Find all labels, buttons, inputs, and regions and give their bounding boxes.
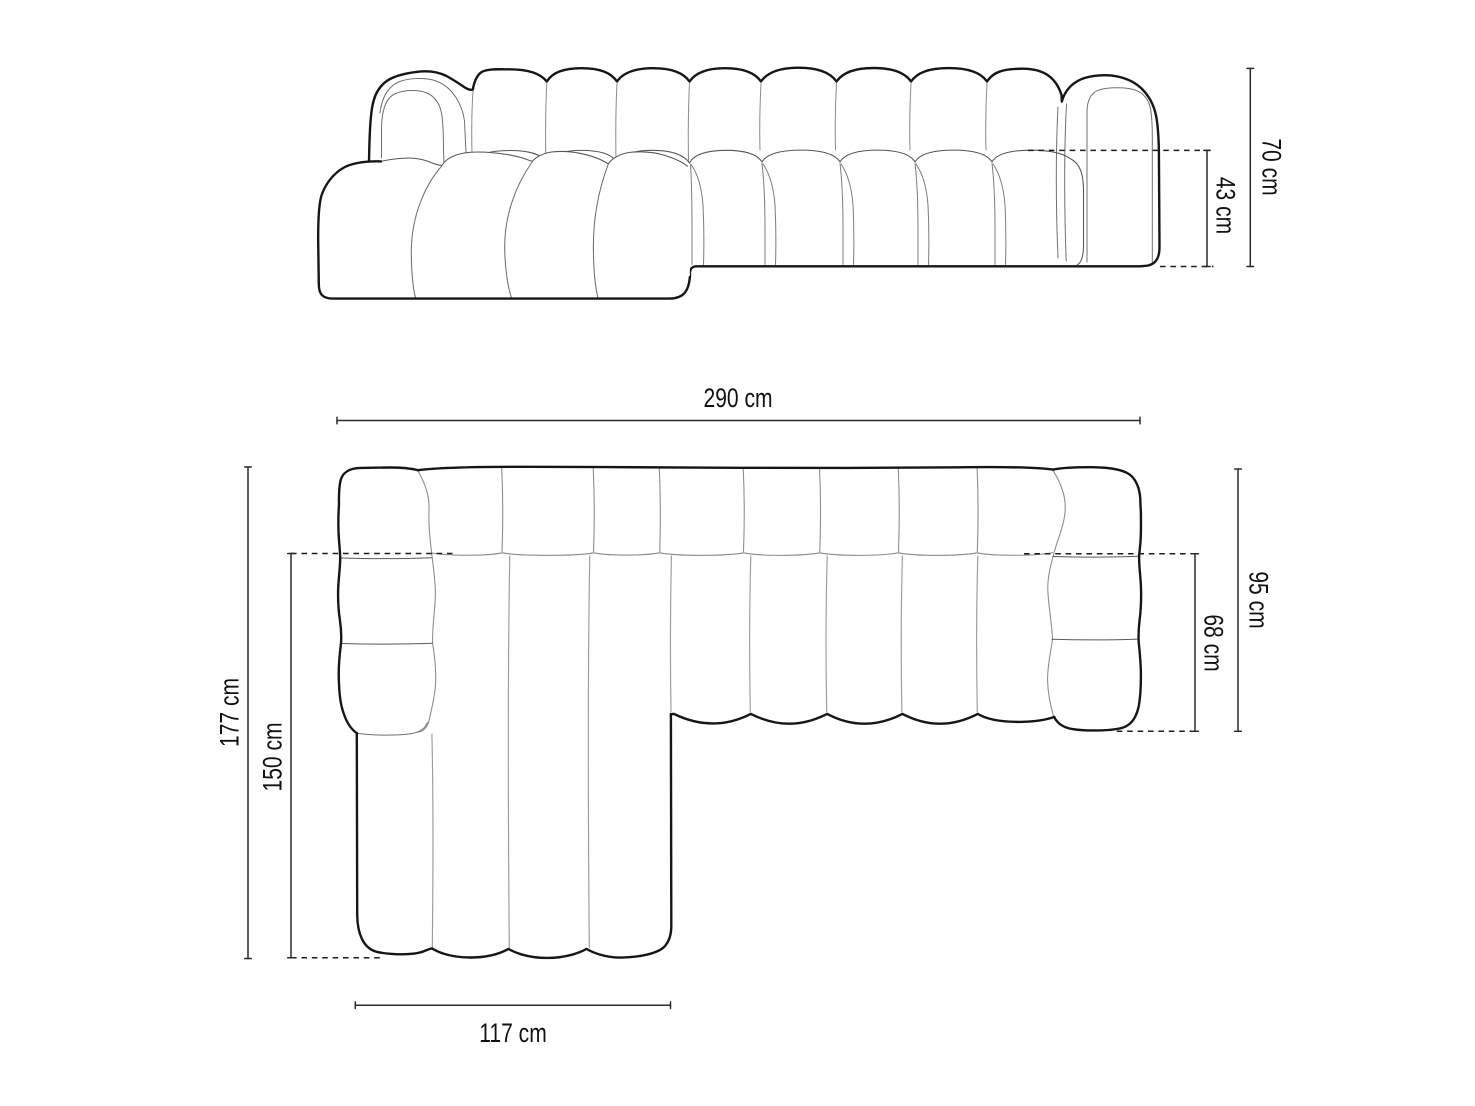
svg-text:43 cm: 43 cm [1210,177,1240,234]
svg-text:150 cm: 150 cm [258,722,288,791]
svg-text:70 cm: 70 cm [1256,138,1286,195]
svg-text:68 cm: 68 cm [1198,614,1228,671]
svg-text:290 cm: 290 cm [703,384,772,414]
svg-text:95 cm: 95 cm [1243,571,1273,628]
svg-text:177 cm: 177 cm [215,678,245,747]
svg-text:117 cm: 117 cm [479,1019,546,1049]
